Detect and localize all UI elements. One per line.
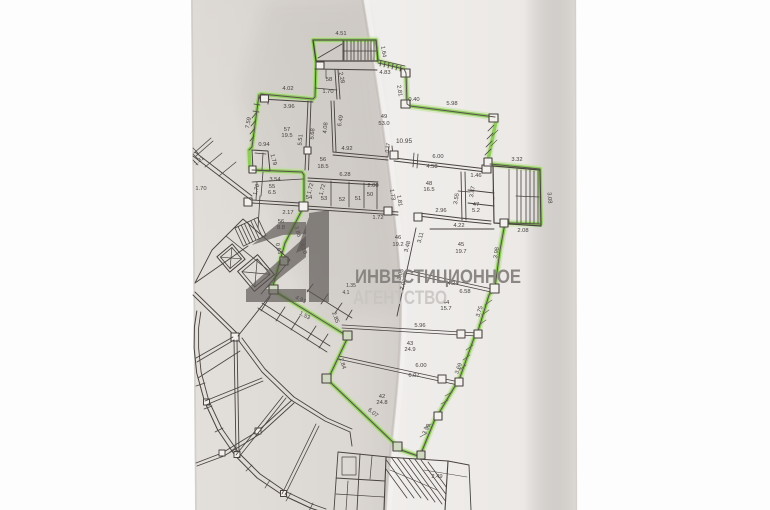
svg-text:19.7: 19.7 [455, 249, 466, 255]
svg-text:53: 53 [321, 196, 327, 202]
svg-text:24.8: 24.8 [376, 400, 387, 406]
svg-text:2.49: 2.49 [431, 474, 442, 480]
svg-text:6.00: 6.00 [415, 363, 426, 369]
svg-text:4.08: 4.08 [323, 122, 330, 134]
svg-text:2.96: 2.96 [435, 208, 446, 214]
svg-text:16.5: 16.5 [423, 187, 434, 193]
svg-text:53.0: 53.0 [378, 121, 389, 127]
svg-text:2.00: 2.00 [367, 183, 378, 189]
svg-text:10.95: 10.95 [396, 138, 412, 145]
svg-text:6.28: 6.28 [339, 172, 350, 178]
svg-text:45: 45 [458, 242, 464, 248]
svg-text:4.92: 4.92 [341, 146, 352, 152]
svg-text:52: 52 [339, 197, 345, 203]
svg-text:2.17: 2.17 [282, 210, 293, 216]
svg-text:0.40: 0.40 [408, 97, 419, 103]
svg-text:3.32: 3.32 [511, 157, 522, 163]
svg-text:6.58: 6.58 [459, 289, 470, 295]
svg-text:1.72: 1.72 [372, 215, 383, 221]
svg-text:4.22: 4.22 [453, 223, 464, 229]
svg-text:4.83: 4.83 [379, 70, 390, 76]
svg-text:1.70: 1.70 [322, 89, 333, 95]
svg-text:5.98: 5.98 [446, 101, 457, 107]
svg-text:3.96: 3.96 [283, 104, 294, 110]
svg-text:24.9: 24.9 [404, 347, 415, 353]
svg-text:6.5: 6.5 [268, 190, 276, 196]
svg-text:5.68: 5.68 [310, 128, 317, 140]
svg-text:ИНВЕСТИЦИОННОЕ: ИНВЕСТИЦИОННОЕ [355, 267, 521, 288]
svg-text:4.51: 4.51 [335, 31, 346, 37]
svg-text:6.07: 6.07 [408, 373, 419, 379]
svg-text:1.46: 1.46 [470, 173, 481, 179]
svg-text:19.2: 19.2 [392, 242, 403, 248]
svg-text:58: 58 [326, 77, 332, 83]
svg-text:0.94: 0.94 [258, 142, 270, 148]
svg-text:56: 56 [320, 157, 326, 163]
svg-text:46: 46 [395, 235, 401, 241]
svg-text:4.02: 4.02 [282, 86, 293, 92]
svg-text:18.5: 18.5 [317, 164, 328, 170]
svg-text:4.1: 4.1 [343, 290, 350, 296]
svg-text:5.51: 5.51 [298, 134, 305, 146]
svg-text:19.5: 19.5 [281, 133, 292, 139]
svg-text:АГЕНТСТВО: АГЕНТСТВО [353, 288, 447, 309]
svg-text:51: 51 [355, 196, 361, 202]
svg-text:5.96: 5.96 [414, 323, 425, 329]
svg-text:5.2: 5.2 [472, 208, 480, 214]
svg-text:49: 49 [381, 114, 387, 120]
svg-text:4.58: 4.58 [426, 164, 437, 170]
svg-text:3.54: 3.54 [269, 177, 281, 183]
svg-text:54: 54 [306, 195, 313, 201]
svg-text:2.08: 2.08 [517, 228, 528, 234]
svg-text:50: 50 [367, 192, 373, 198]
svg-text:6.00: 6.00 [432, 154, 443, 160]
svg-text:1.70: 1.70 [195, 186, 206, 192]
svg-text:3.08: 3.08 [546, 192, 553, 204]
